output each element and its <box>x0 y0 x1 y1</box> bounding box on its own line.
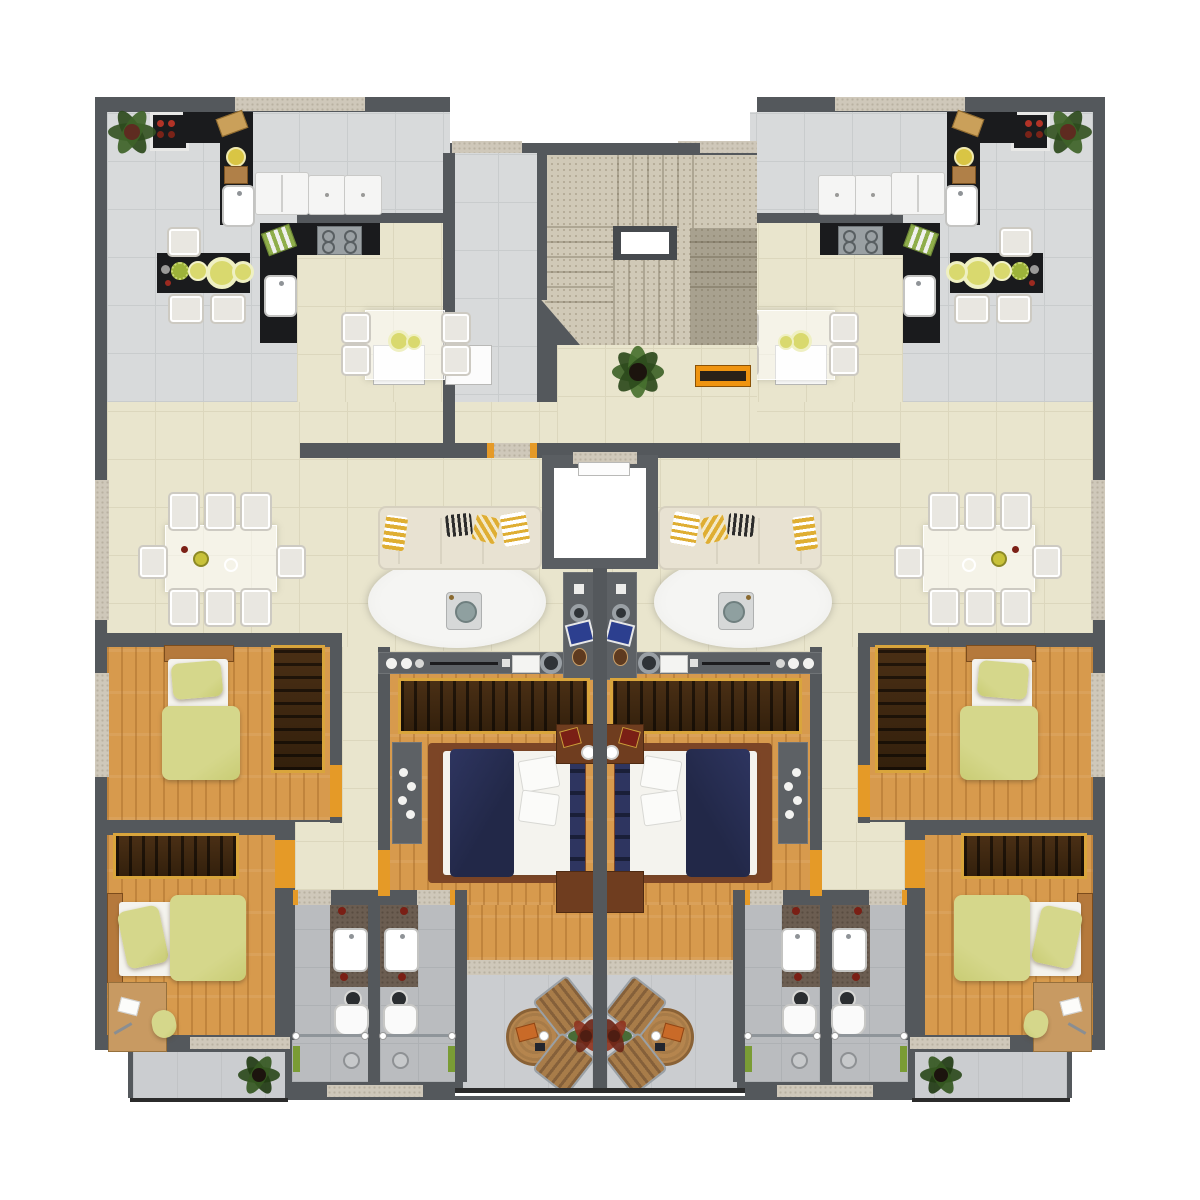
dining-chair <box>928 492 960 531</box>
dining-chair <box>928 588 960 627</box>
hob-burner <box>843 241 856 254</box>
desk-vase <box>613 648 628 666</box>
pillow-striped-white <box>669 511 700 547</box>
burner <box>1036 131 1043 138</box>
bathroom1-towel <box>900 1046 907 1072</box>
window-top-kitchen <box>835 97 965 111</box>
coffee-table <box>718 592 754 630</box>
vanity-decor <box>854 907 862 915</box>
master-navy-blanket <box>686 749 750 877</box>
tv-console <box>636 652 822 674</box>
elevator-door <box>578 462 630 476</box>
cooktop-hob <box>838 226 883 255</box>
master-pillow <box>640 790 682 827</box>
stair-flight-return <box>690 228 757 288</box>
nook-chair <box>829 344 859 376</box>
dining-chair <box>964 588 996 627</box>
stair-flight-left <box>547 225 613 303</box>
wall-desk <box>605 572 637 680</box>
bedroom2-door-frame <box>905 840 925 888</box>
washer <box>818 175 856 215</box>
main-balcony-railing-gap <box>455 1093 745 1096</box>
tv-knob <box>803 658 814 669</box>
bedroom1-blanket <box>960 706 1038 780</box>
table-berry <box>1012 546 1019 553</box>
nook-chair <box>829 312 859 344</box>
desk-knob <box>612 604 630 622</box>
coffee-table-cup <box>746 595 751 600</box>
sofa <box>658 506 822 570</box>
dining-table-8 <box>923 525 1035 592</box>
bathroom1-sink <box>832 928 867 972</box>
coffee-table-decor <box>723 601 745 623</box>
bathroom2-shower-head <box>791 1052 808 1069</box>
hob-burner <box>865 241 878 254</box>
wall-bathrooms-divider <box>820 905 832 1082</box>
dining-chair <box>1000 588 1032 627</box>
tv-button <box>690 659 698 667</box>
window-master-balcony <box>607 960 733 975</box>
master-dresser <box>778 742 808 844</box>
master-door-frame <box>810 850 822 896</box>
bathroom2-shower-glass <box>746 1034 819 1037</box>
fridge <box>891 172 945 215</box>
lobby-plant <box>612 346 664 398</box>
table-plate <box>962 558 976 572</box>
plant-pot <box>629 363 647 381</box>
bedroom2-wardrobe <box>961 833 1087 879</box>
hallway-floor-a <box>822 647 858 837</box>
laundry-sink <box>903 275 936 317</box>
tv-screen-line <box>702 662 770 665</box>
serving-board <box>952 166 976 184</box>
dining-chair <box>894 545 924 579</box>
bathroom2-sink <box>781 928 816 972</box>
bathroom1-door-sill <box>869 890 903 905</box>
bar-stool <box>999 227 1033 257</box>
bathroom2-door-sill <box>749 890 783 905</box>
nook-bowl <box>778 334 794 350</box>
window-bathroom-bottom <box>777 1085 873 1097</box>
desk-pad <box>616 584 626 594</box>
bedroom1-pillow <box>977 660 1030 700</box>
window-bedroom2-bottom <box>910 1037 1010 1049</box>
stairwell-void <box>621 232 669 254</box>
fruit-bowl-small <box>946 261 968 283</box>
dining-chair <box>964 492 996 531</box>
breakfast-bar <box>950 253 1043 293</box>
plate-yellow <box>954 147 974 167</box>
lobby-bench <box>695 365 751 387</box>
party-wall <box>593 568 607 1100</box>
bathroom2-door-frame <box>745 890 750 905</box>
window-living-left <box>1091 480 1105 620</box>
master-navy-runner <box>615 747 630 879</box>
kitchen-plant <box>1044 108 1092 156</box>
master-pillow <box>640 755 683 793</box>
stair-left-wall <box>537 155 547 300</box>
bathroom1-toilet <box>831 1004 866 1036</box>
bar-stool <box>996 294 1032 324</box>
elevator-cab <box>554 468 646 558</box>
nightstand-art <box>618 727 641 748</box>
dishwasher <box>854 175 892 215</box>
bedroom1-door-frame <box>858 765 870 817</box>
stair-flight-lower <box>613 260 685 345</box>
side-balcony-railing <box>912 1098 1070 1102</box>
dresser-knob <box>793 796 802 805</box>
berry-red <box>1029 280 1035 286</box>
vanity-decor <box>852 973 860 981</box>
dresser-knob <box>792 768 801 777</box>
tv-box-white <box>660 655 688 673</box>
pillow-striped-yellow <box>792 515 819 552</box>
burner <box>1025 120 1032 127</box>
balcony-tray <box>661 1023 684 1043</box>
side-balcony-plant <box>920 1054 962 1096</box>
pillow-zebra <box>727 513 755 538</box>
desk-lamp <box>1068 1022 1087 1035</box>
master-bedroom-floor-ext <box>607 905 733 960</box>
bar-stool <box>954 294 990 324</box>
bathroom1-shower-glass <box>833 1034 906 1037</box>
bathroom2-towel <box>745 1046 752 1072</box>
tv-speaker-ring <box>638 652 660 674</box>
burner <box>1025 131 1032 138</box>
wall-side-balcony-edge <box>1067 1050 1072 1098</box>
kitchen-sink <box>945 185 978 227</box>
bedroom2-blanket <box>954 895 1030 981</box>
floor-plan-canvas <box>0 0 1200 1200</box>
hallway-floor-b <box>820 822 905 890</box>
stair-top-window <box>700 141 757 153</box>
tv-knob <box>776 659 785 668</box>
nightstand <box>604 724 644 764</box>
balcony-item-dark <box>655 1043 665 1051</box>
fridge-divider <box>917 175 919 212</box>
vanity-decor <box>794 973 802 981</box>
dining-chair <box>1032 545 1062 579</box>
dining-chair <box>1000 492 1032 531</box>
burner <box>1036 120 1043 127</box>
table-flower <box>991 551 1007 567</box>
wall-balcony-left <box>737 975 745 1088</box>
desk-paper <box>1059 997 1082 1016</box>
dresser-knob <box>785 810 794 819</box>
bathroom1-door-frame <box>902 890 907 905</box>
bedroom1-wardrobe <box>875 645 929 773</box>
grapes-green <box>1011 262 1029 280</box>
stair-flight-upper <box>617 155 705 228</box>
vanity-decor <box>792 907 800 915</box>
laptop <box>605 619 636 647</box>
bench-seat <box>700 371 746 381</box>
balcony-cup <box>651 1031 661 1041</box>
plate-small <box>992 261 1012 281</box>
dresser-knob <box>784 782 793 791</box>
window-bedroom1-left <box>1091 673 1105 777</box>
bed-bench <box>604 871 644 913</box>
bathroom1-shower-head <box>840 1052 857 1069</box>
bowl-gray <box>1030 265 1039 274</box>
bathroom2-toilet <box>782 1004 817 1036</box>
tv-knob <box>788 658 799 669</box>
